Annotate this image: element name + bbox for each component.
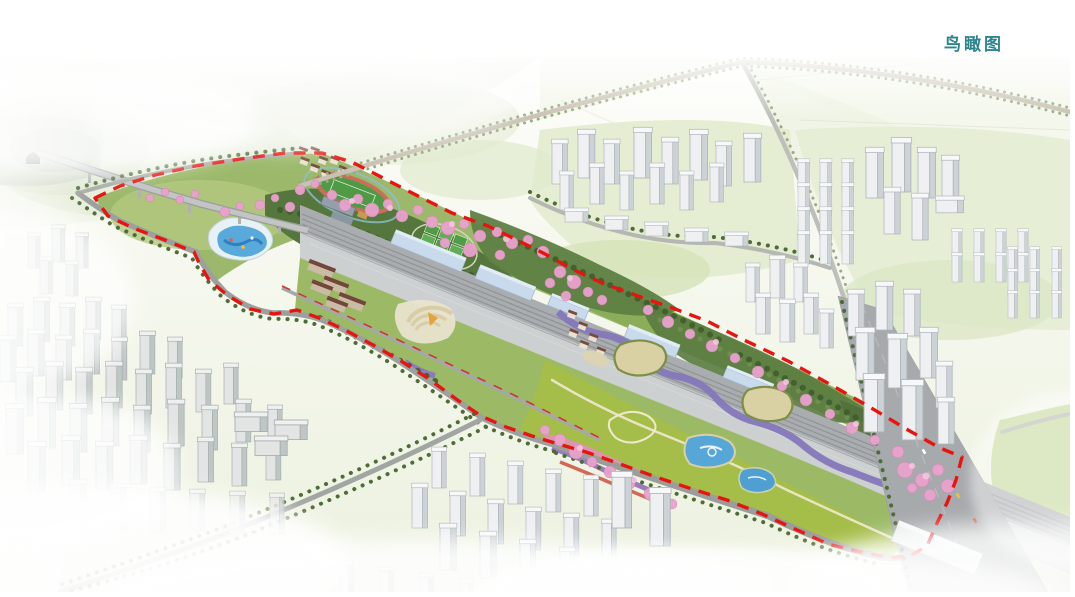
page-title: 鸟瞰图 [944,30,1064,55]
leaf-plaza-1 [614,340,666,375]
fan-plaza [395,300,456,344]
ornamental-pond-1 [684,435,735,468]
presentation-slide: 鸟瞰图 [0,0,1075,597]
leaf-plaza-2 [742,387,792,421]
aerial-rendering [0,57,1070,592]
cluster-far-right [1008,247,1062,318]
